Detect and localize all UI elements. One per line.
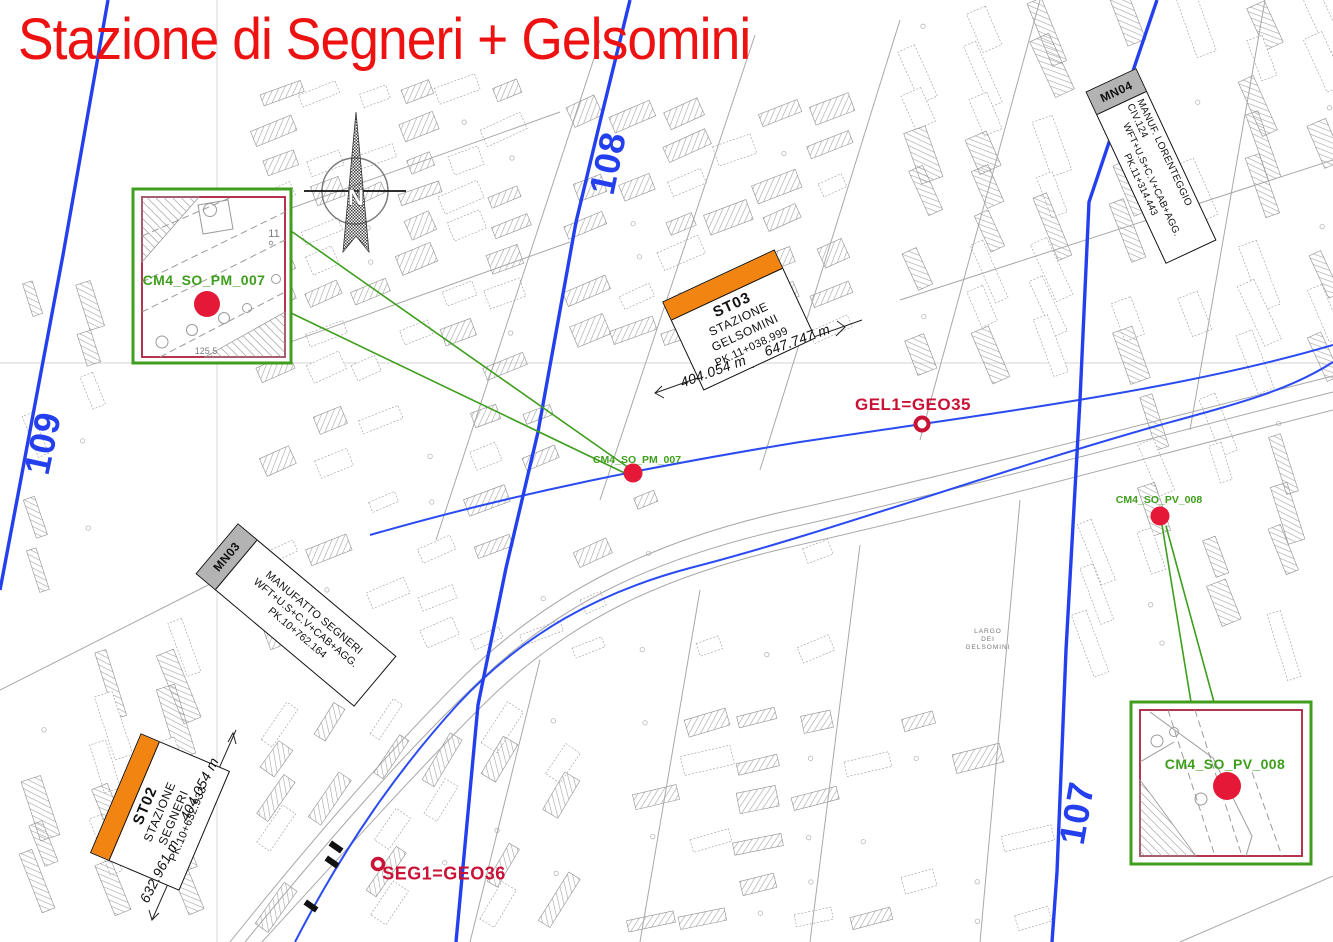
building-outline <box>732 833 783 855</box>
building-outline <box>563 275 611 306</box>
building-outline <box>447 210 486 241</box>
building-outline <box>801 710 834 733</box>
building-outline <box>797 635 834 663</box>
building-outline <box>404 211 437 240</box>
building-outline <box>818 174 847 197</box>
tree-symbol <box>806 835 810 839</box>
tree-symbol <box>1320 224 1324 228</box>
tree-symbol <box>1196 100 1200 104</box>
building-outline <box>1176 0 1217 58</box>
building-outline <box>260 741 293 777</box>
building-outline <box>1109 0 1145 46</box>
building-outline <box>752 169 802 204</box>
building-outline <box>474 534 513 558</box>
building-outline <box>737 707 777 728</box>
building-outline <box>374 808 410 849</box>
building-outline <box>1203 536 1229 577</box>
page-title: Stazione di Segneri + Gelsomini <box>18 6 750 73</box>
building-outline <box>23 496 47 538</box>
building-outline <box>522 445 559 471</box>
building-outline <box>570 314 611 348</box>
building-outline <box>307 150 344 177</box>
core-dot-pm007-inset <box>194 291 220 317</box>
place-label-line: LARGO <box>965 628 1010 636</box>
building-outline <box>678 908 727 930</box>
building-outline <box>902 248 933 291</box>
tree-symbol <box>430 500 434 504</box>
building-outline <box>407 152 435 174</box>
place-label-largo-gelsomini: LARGO DEI GELSOMINI <box>965 628 1010 652</box>
tram-marks <box>304 841 344 913</box>
core-dot-pm007 <box>624 464 643 483</box>
building-outline <box>395 242 438 275</box>
building-outline <box>26 548 49 593</box>
inset-area-number: 125.5 <box>195 346 218 356</box>
building-outline <box>359 85 390 108</box>
place-label-line: GELSOMINI <box>965 644 1010 652</box>
map-canvas: N Stazione di Segneri + Gelsomini 109 10… <box>0 0 1333 942</box>
building-outline <box>471 404 501 427</box>
building-outline <box>704 200 754 236</box>
tree-symbol <box>651 834 655 838</box>
building-outline <box>634 490 658 509</box>
tree-symbol <box>462 120 466 124</box>
place-label-line: DEI <box>965 636 1010 644</box>
building-outline <box>809 93 854 125</box>
building-outline <box>366 577 410 608</box>
building-outline <box>470 442 502 470</box>
tree-symbol <box>1160 641 1164 645</box>
building-outline <box>619 283 654 309</box>
building-outline <box>314 702 345 741</box>
building-outline <box>80 372 105 409</box>
building-outline <box>1207 579 1242 626</box>
building-outline <box>573 538 612 568</box>
building-outline <box>424 779 458 822</box>
building-outline <box>351 355 381 381</box>
building-outline <box>263 150 299 176</box>
building-outline <box>480 112 527 147</box>
building-outline <box>438 180 484 214</box>
building-outline <box>422 733 462 787</box>
building-outline <box>1137 528 1166 575</box>
survey-label-seg1: SEG1=GEO36 <box>382 864 506 885</box>
building-outline <box>566 95 603 128</box>
building-outline <box>543 772 580 818</box>
building-outline <box>315 448 354 478</box>
building-outline <box>684 708 730 737</box>
building-outline <box>807 130 853 158</box>
tree-symbol <box>640 647 644 651</box>
building-outline <box>298 81 339 107</box>
building-outline <box>1015 906 1052 931</box>
building-outline <box>758 99 801 126</box>
building-outline <box>609 100 656 133</box>
building-outline <box>480 882 517 928</box>
building-outline <box>306 351 346 383</box>
building-outline <box>627 911 676 932</box>
building-outline <box>301 218 342 245</box>
tree-symbol <box>510 156 514 160</box>
tree-symbol <box>975 919 979 923</box>
building-outline <box>313 406 347 434</box>
building-outline <box>696 636 722 656</box>
building-outline <box>484 278 526 309</box>
tree-symbol <box>554 871 558 875</box>
tree-symbol <box>551 719 555 723</box>
building-outline <box>905 334 937 376</box>
building-outline <box>680 745 734 775</box>
building-outline <box>401 80 434 104</box>
building-outline <box>398 181 442 206</box>
inset-label-pm007: CM4_SO_PM_007 <box>143 272 266 288</box>
north-arrow-label: N <box>348 185 364 210</box>
building-outline <box>572 637 605 658</box>
tree-symbol <box>808 756 812 760</box>
inset-label-pv008: CM4_SO_PV_008 <box>1165 756 1285 772</box>
building-outline <box>1178 291 1212 337</box>
building-outline <box>440 318 476 346</box>
building-outline <box>1030 33 1075 97</box>
building-outline <box>810 281 853 308</box>
building-outline <box>305 280 342 307</box>
core-dot-pv008-inset <box>1213 772 1241 800</box>
tree-symbol <box>369 260 373 264</box>
building-outline <box>901 711 935 732</box>
building-outline <box>1267 610 1301 680</box>
building-outline <box>420 617 460 648</box>
survey-marker-gel1 <box>916 418 929 431</box>
building-outline <box>740 873 777 896</box>
tree-symbol <box>975 880 979 884</box>
tree-symbol <box>541 596 545 600</box>
building-outline <box>632 785 679 810</box>
core-label-pv008: CM4_SO_PV_008 <box>1116 494 1202 506</box>
building-outline <box>663 129 712 163</box>
building-outline <box>76 281 105 331</box>
building-outline <box>77 330 101 366</box>
building-outline <box>971 326 1010 384</box>
building-outline <box>399 111 439 142</box>
building-outline <box>971 165 1004 209</box>
tree-symbol <box>42 728 46 732</box>
core-dot-pv008 <box>1151 507 1170 526</box>
core-label-pm007: CM4_SO_PM_007 <box>593 454 681 466</box>
tree-symbol <box>1148 603 1152 607</box>
tree-symbol <box>1327 106 1331 110</box>
tree-symbol <box>914 756 918 760</box>
building-outline <box>418 585 457 612</box>
building-outline <box>259 446 296 477</box>
tree-symbol <box>765 652 769 656</box>
tree-symbol <box>508 331 512 335</box>
tree-symbol <box>758 911 762 915</box>
building-outline <box>434 74 480 105</box>
building-outline <box>844 752 892 777</box>
building-outline <box>817 238 850 268</box>
tree-symbol <box>428 454 432 458</box>
tree-symbol <box>325 588 329 592</box>
building-outline <box>690 829 732 853</box>
building-outline <box>523 404 553 424</box>
building-outline <box>255 882 297 932</box>
building-outline <box>736 785 779 813</box>
building-outline <box>493 79 522 102</box>
building-outline <box>564 211 607 239</box>
building-outline <box>901 869 937 894</box>
building-outline <box>491 214 531 239</box>
building-outline <box>488 186 521 208</box>
building-outline <box>23 281 43 317</box>
building-outline <box>668 168 707 196</box>
building-outline <box>538 872 580 928</box>
tree-symbol <box>809 880 813 884</box>
tree-symbol <box>643 721 647 725</box>
building-outline <box>369 491 399 512</box>
inset-box-pv008 <box>1131 702 1311 864</box>
tree-symbol <box>782 151 786 155</box>
tree-symbol <box>631 222 635 226</box>
building-outline <box>370 699 402 740</box>
building-outline <box>260 80 304 106</box>
building-outline <box>308 772 351 825</box>
building-outline <box>350 278 390 305</box>
tree-symbol <box>922 314 926 318</box>
tree-symbol <box>637 255 641 259</box>
building-outline <box>791 786 839 810</box>
building-outline <box>358 405 403 434</box>
building-outline <box>261 702 298 747</box>
building-outline <box>471 627 503 650</box>
survey-label-gel1: GEL1=GEO35 <box>855 395 971 415</box>
inset-parcel-number: 11 <box>268 228 279 240</box>
building-outline <box>850 907 893 930</box>
building-outline <box>664 98 705 130</box>
tree-symbol <box>921 24 925 28</box>
building-outline <box>713 134 757 166</box>
building-outline <box>657 235 705 270</box>
building-outline <box>610 316 657 344</box>
building-outline <box>442 281 477 306</box>
building-outline <box>1113 326 1151 384</box>
building-outline <box>1001 825 1054 852</box>
building-outline <box>763 203 801 231</box>
tree-symbol <box>861 839 865 843</box>
building-outline <box>1032 115 1072 177</box>
tree-symbol <box>80 439 84 443</box>
tree-symbol <box>86 526 90 530</box>
building-outline <box>306 534 353 566</box>
building-outline <box>736 754 779 775</box>
building-outline <box>250 115 297 147</box>
building-outline <box>400 320 433 345</box>
